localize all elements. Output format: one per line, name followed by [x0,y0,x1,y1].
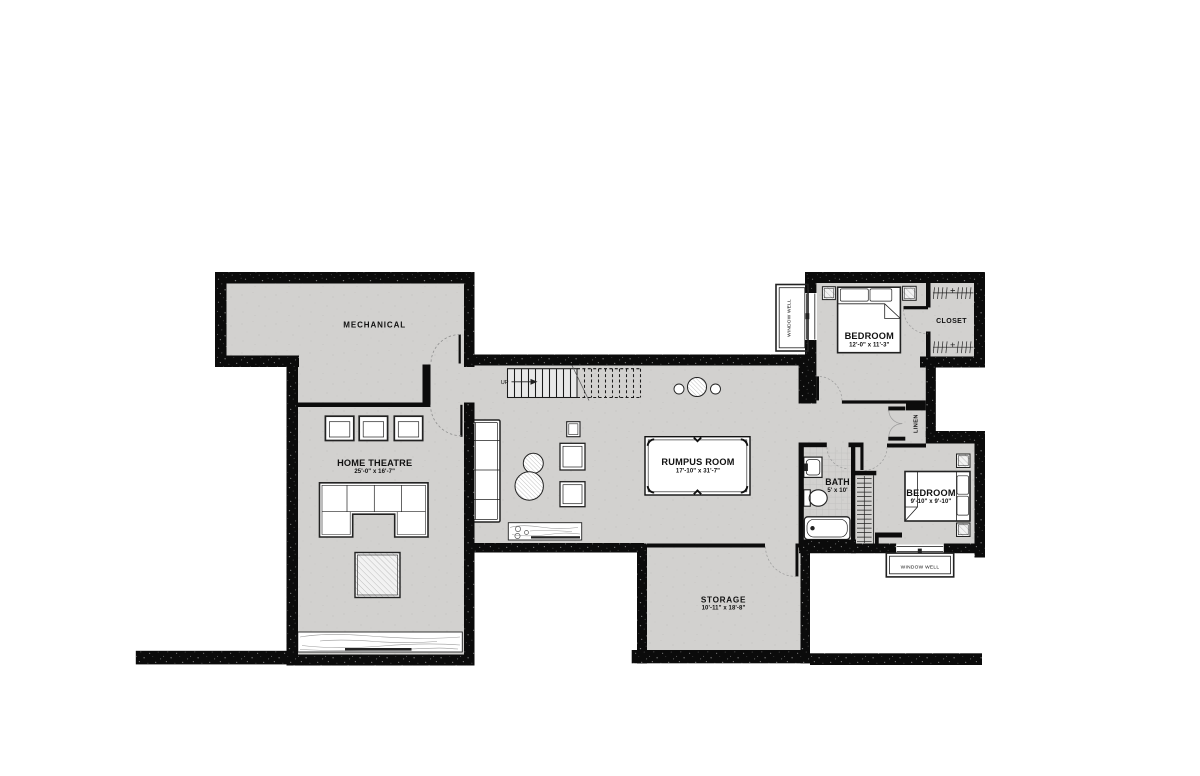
svg-text:UP: UP [501,380,509,386]
svg-text:LINEN: LINEN [914,414,920,433]
svg-text:WINDOW WELL: WINDOW WELL [787,299,793,337]
svg-text:CLOSET: CLOSET [936,318,967,325]
svg-text:12'-0" x 11'-3": 12'-0" x 11'-3" [849,342,889,348]
svg-text:BEDROOM: BEDROOM [845,331,895,341]
svg-text:HOME THEATRE: HOME THEATRE [337,458,412,468]
svg-text:9'-10" x 9'-10": 9'-10" x 9'-10" [911,499,952,505]
svg-text:WINDOW WELL: WINDOW WELL [901,564,940,570]
svg-text:STORAGE: STORAGE [701,595,746,604]
svg-text:10'-11" x 18'-8": 10'-11" x 18'-8" [702,606,746,612]
svg-text:MECHANICAL: MECHANICAL [343,321,406,330]
svg-text:BATH: BATH [825,477,850,487]
svg-text:5' x 10': 5' x 10' [827,488,848,494]
svg-text:17'-10" x 31'-7": 17'-10" x 31'-7" [676,468,720,474]
svg-text:RUMPUS ROOM: RUMPUS ROOM [661,457,734,467]
svg-text:BEDROOM: BEDROOM [906,488,956,498]
svg-text:25'-0" x 16'-7": 25'-0" x 16'-7" [354,469,395,475]
